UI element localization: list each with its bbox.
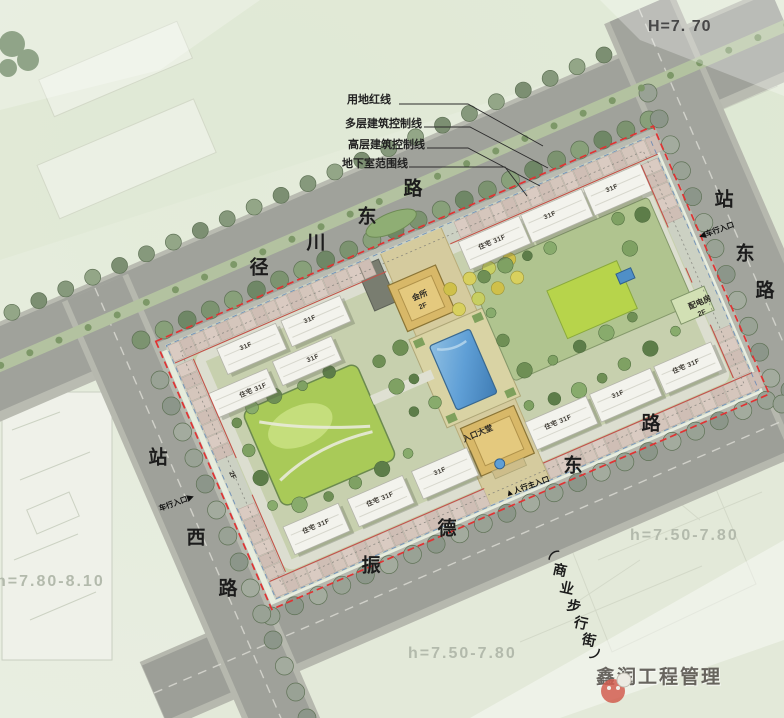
- road-name-char: 行: [573, 615, 590, 632]
- median-bush: [551, 122, 558, 129]
- median-bush: [609, 97, 616, 104]
- road-name-char: 振: [361, 557, 380, 576]
- street-tree: [616, 453, 634, 471]
- street-tree: [663, 432, 681, 450]
- street-tree: [327, 164, 343, 180]
- street-tree: [478, 181, 496, 199]
- street-tree: [151, 371, 169, 389]
- street-tree: [219, 527, 237, 545]
- median-bush: [347, 211, 354, 218]
- street-tree: [224, 291, 242, 309]
- street-tree: [273, 187, 289, 203]
- street-tree: [710, 412, 728, 430]
- street-tree: [112, 258, 128, 274]
- street-tree: [31, 293, 47, 309]
- road-name-char: 川: [306, 234, 325, 253]
- median-bush: [318, 223, 325, 230]
- median-bush: [143, 299, 150, 306]
- street-tree: [4, 304, 20, 320]
- street-tree: [247, 281, 265, 299]
- street-tree: [165, 234, 181, 250]
- road-name-char: 西: [186, 529, 205, 548]
- median-bush: [172, 286, 179, 293]
- street-tree: [684, 188, 702, 206]
- road-name-char: 东: [357, 208, 376, 227]
- street-tree: [241, 579, 259, 597]
- street-tree: [571, 141, 589, 159]
- street-tree: [300, 176, 316, 192]
- street-tree: [138, 246, 154, 262]
- median-bush: [114, 311, 121, 318]
- street-tree: [287, 683, 305, 701]
- street-tree: [162, 397, 180, 415]
- street-tree: [317, 251, 335, 269]
- road-name-char: 路: [755, 282, 774, 301]
- street-tree: [286, 597, 304, 615]
- street-tree: [455, 191, 473, 209]
- median-bush: [288, 236, 295, 243]
- company-logo-icon: [596, 668, 640, 706]
- median-bush: [55, 337, 62, 344]
- median-bush: [667, 72, 674, 79]
- median-bush: [638, 85, 645, 92]
- street-tree: [498, 504, 516, 522]
- road-name-char: 站: [148, 449, 167, 468]
- elevation-note-south: h=7.50-7.80: [408, 646, 517, 662]
- street-tree: [762, 369, 780, 387]
- street-tree: [740, 317, 758, 335]
- road-name-char: 街: [581, 632, 598, 649]
- plan-drawing: [0, 0, 784, 718]
- road-name-char: 步: [566, 598, 583, 615]
- company-watermark: 鑫润工程管理: [596, 668, 722, 687]
- street-tree: [253, 605, 271, 623]
- street-tree: [515, 82, 531, 98]
- median-bush: [230, 261, 237, 268]
- street-tree: [208, 501, 226, 519]
- street-tree: [58, 281, 74, 297]
- median-bush: [434, 173, 441, 180]
- street-tree: [132, 331, 150, 349]
- street-tree: [192, 222, 208, 238]
- street-tree: [435, 117, 451, 133]
- street-tree: [340, 241, 358, 259]
- street-tree: [201, 301, 219, 319]
- street-tree: [432, 201, 450, 219]
- street-tree: [548, 151, 566, 169]
- road-name-char: 站: [714, 191, 733, 210]
- road-name-char: 德: [437, 520, 456, 539]
- street-tree: [639, 443, 657, 461]
- legend-item-multilayer-line: 多层建筑控制线: [345, 119, 422, 130]
- road-name-char: 路: [403, 180, 422, 199]
- street-tree: [757, 391, 775, 409]
- street-tree: [264, 631, 282, 649]
- street-tree: [271, 271, 289, 289]
- median-bush: [376, 198, 383, 205]
- street-tree: [219, 211, 235, 227]
- street-tree: [617, 121, 635, 139]
- site-plan-canvas: 用地红线 多层建筑控制线 高层建筑控制线 地下室范围线 径川东路 站东路 振德东…: [0, 0, 784, 718]
- legend-item-basement-line: 地下室范围线: [342, 159, 408, 170]
- street-tree: [178, 311, 196, 329]
- street-tree: [542, 70, 558, 86]
- legend-item-highrise-line: 高层建筑控制线: [348, 140, 425, 151]
- median-bush: [580, 110, 587, 117]
- road-name-char: 路: [641, 415, 660, 434]
- legend-item-red-line: 用地红线: [347, 95, 391, 106]
- road-name-char: 路: [218, 580, 237, 599]
- street-tree: [594, 131, 612, 149]
- street-tree: [246, 199, 262, 215]
- street-tree: [196, 475, 214, 493]
- median-bush: [201, 274, 208, 281]
- road-name-char: 径: [249, 259, 268, 278]
- median-bush: [259, 248, 266, 255]
- street-tree: [488, 94, 504, 110]
- street-tree: [650, 110, 668, 128]
- street-tree: [596, 47, 612, 63]
- street-tree: [230, 553, 248, 571]
- elevation-note-east: h=7.50-7.80: [630, 528, 739, 544]
- street-tree: [155, 321, 173, 339]
- street-tree: [569, 59, 585, 75]
- street-tree: [275, 657, 293, 675]
- median-bush: [26, 349, 33, 356]
- road-name-char: 东: [735, 245, 754, 264]
- median-bush: [463, 160, 470, 167]
- street-tree: [185, 449, 203, 467]
- street-tree: [734, 402, 752, 420]
- street-tree: [85, 269, 101, 285]
- median-bush: [492, 148, 499, 155]
- street-tree: [174, 423, 192, 441]
- site-height-note: H=7. 70: [648, 19, 711, 35]
- street-tree: [294, 261, 312, 279]
- street-tree: [687, 422, 705, 440]
- road-name-char: 东: [563, 457, 582, 476]
- road-name-char: 商: [552, 562, 569, 579]
- street-tree: [661, 136, 679, 154]
- elevation-note-west: h=7.80-8.10: [0, 574, 105, 590]
- road-name-char: 业: [559, 580, 576, 597]
- median-bush: [85, 324, 92, 331]
